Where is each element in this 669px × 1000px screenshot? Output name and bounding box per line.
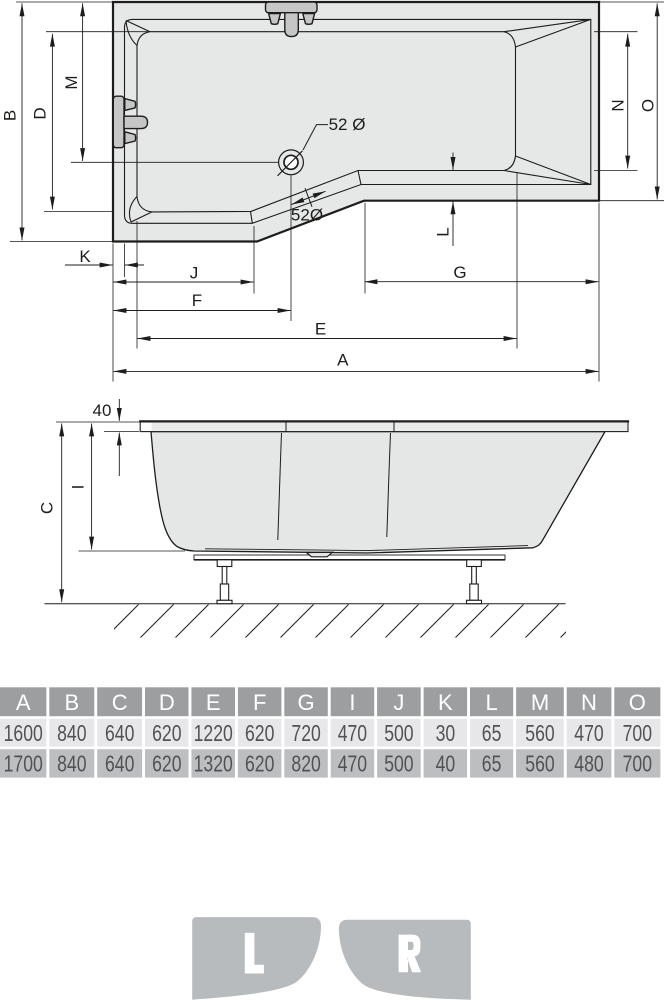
svg-text:A: A (337, 350, 349, 369)
svg-text:O: O (639, 99, 658, 112)
svg-text:52Ø: 52Ø (291, 206, 323, 225)
svg-text:40: 40 (436, 751, 456, 777)
svg-text:K: K (438, 690, 453, 715)
svg-text:840: 840 (57, 720, 86, 746)
svg-text:52 Ø: 52 Ø (329, 115, 366, 134)
svg-text:M: M (62, 75, 81, 89)
svg-text:D: D (159, 690, 175, 715)
svg-text:480: 480 (574, 751, 603, 777)
svg-text:M: M (531, 690, 549, 715)
svg-text:O: O (629, 690, 646, 715)
svg-text:L: L (485, 690, 497, 715)
svg-text:D: D (31, 107, 50, 119)
svg-text:700: 700 (623, 751, 652, 777)
svg-text:1320: 1320 (194, 751, 233, 777)
svg-text:J: J (190, 264, 199, 283)
svg-text:A: A (16, 690, 31, 715)
svg-text:620: 620 (245, 720, 274, 746)
svg-text:J: J (393, 690, 404, 715)
svg-text:620: 620 (152, 720, 181, 746)
svg-text:65: 65 (482, 720, 502, 746)
svg-text:720: 720 (291, 720, 320, 746)
svg-text:40: 40 (93, 401, 112, 420)
svg-text:E: E (206, 690, 221, 715)
svg-text:500: 500 (384, 751, 413, 777)
svg-text:840: 840 (57, 751, 86, 777)
svg-text:G: G (298, 690, 315, 715)
svg-text:1600: 1600 (4, 720, 43, 746)
svg-text:620: 620 (245, 751, 274, 777)
svg-text:560: 560 (525, 751, 554, 777)
svg-text:G: G (453, 263, 466, 282)
svg-text:30: 30 (436, 720, 456, 746)
svg-text:500: 500 (384, 720, 413, 746)
svg-text:65: 65 (482, 751, 502, 777)
svg-text:1220: 1220 (194, 720, 233, 746)
svg-text:F: F (192, 291, 202, 310)
svg-text:N: N (581, 690, 597, 715)
svg-text:700: 700 (623, 720, 652, 746)
svg-text:620: 620 (152, 751, 181, 777)
svg-text:C: C (112, 690, 128, 715)
svg-text:C: C (38, 502, 57, 514)
svg-text:820: 820 (291, 751, 320, 777)
svg-text:B: B (1, 110, 20, 121)
svg-text:1700: 1700 (4, 751, 43, 777)
svg-text:640: 640 (105, 751, 134, 777)
svg-text:B: B (64, 690, 79, 715)
svg-text:I: I (69, 485, 88, 490)
svg-text:E: E (315, 320, 326, 339)
svg-text:F: F (253, 690, 266, 715)
svg-text:L: L (434, 227, 453, 236)
svg-text:470: 470 (338, 720, 367, 746)
svg-text:470: 470 (338, 751, 367, 777)
svg-text:N: N (609, 99, 628, 111)
svg-text:470: 470 (574, 720, 603, 746)
svg-text:560: 560 (525, 720, 554, 746)
svg-text:I: I (349, 690, 355, 715)
svg-text:640: 640 (105, 720, 134, 746)
svg-text:K: K (79, 247, 91, 266)
